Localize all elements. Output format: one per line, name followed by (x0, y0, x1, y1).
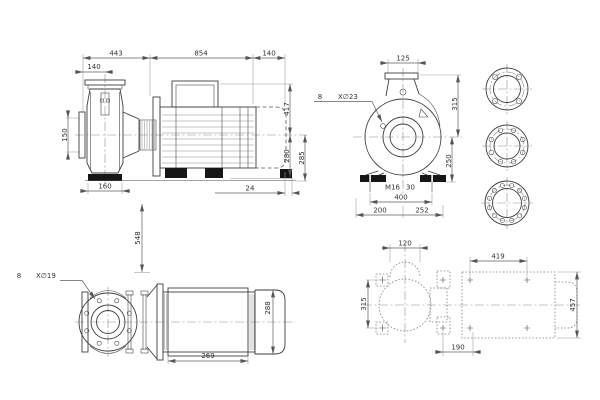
foundation-plan-view: 120 315 419 457 190 (360, 240, 581, 357)
dim-axis-right: 252 (415, 207, 428, 215)
hole-callout-plan-view: 8 X∅19 (17, 272, 95, 299)
bolt-hole (518, 214, 522, 218)
bolt-cross-marks (467, 277, 530, 331)
adapter-tab (437, 271, 450, 288)
anchor-bolts (370, 182, 432, 192)
dim-axis-to-floor: 285 (298, 151, 306, 164)
flange-bolt-hole (381, 124, 386, 129)
anchor-thread-label: M16 (385, 184, 400, 192)
bolt-hole (97, 341, 101, 345)
dim-discharge-flange: 125 (396, 55, 409, 63)
bolt-hole (489, 150, 494, 155)
bolt-hole (510, 184, 514, 188)
dim-anchor-span: 400 (394, 194, 407, 202)
dim-suction-to-axis: 140 (87, 63, 100, 71)
pump-foot-pad (88, 174, 122, 181)
dim-pump-bolt-width: 315 (360, 297, 368, 310)
motor-foot-pad (165, 168, 187, 178)
hole-callout-end-view: 8 X∅23 (314, 93, 382, 122)
bolt-hole (115, 299, 119, 303)
dim-axis-height: 548 (134, 231, 142, 244)
dim-pump-bolt-span: 120 (398, 240, 411, 248)
bolt-hole (115, 341, 119, 345)
top-plan-view: 548 8 X∅19 288 269 (17, 204, 295, 364)
bolt-hole (492, 214, 496, 218)
dim-motor-bolt-width: 457 (569, 298, 577, 311)
dim-motor-section: 854 (194, 50, 208, 58)
motor-body (160, 107, 256, 168)
pump-foot-pad-right (420, 175, 446, 182)
dim-axis-to-top: 417 (283, 102, 291, 115)
long-motor-option-outline (256, 107, 286, 168)
dim-foot-width: 160 (98, 183, 111, 191)
bolt-cross-marks (379, 277, 386, 332)
pump-foot-pad-left (360, 175, 386, 182)
flange-4-hole (482, 64, 532, 114)
dim-axis-to-base-end: 250 (445, 154, 453, 167)
flange-8-hole (482, 121, 532, 171)
bolt-hole (500, 184, 504, 188)
dim-rear-extension: 140 (262, 50, 275, 58)
discharge-flange-front (385, 73, 418, 79)
side-elevation-view: 443 854 140 140 150 (61, 50, 307, 197)
hole-count-label: 8 (17, 272, 21, 280)
hole-spec-label: X∅19 (36, 272, 56, 280)
pump-dimensional-drawing: 443 854 140 140 150 (0, 0, 600, 400)
dim-motor-bolt-span: 419 (491, 253, 504, 261)
dim-axis-left: 200 (373, 207, 386, 215)
drawing-canvas: 443 854 140 140 150 (0, 0, 600, 400)
hole-count-label: 8 (318, 93, 322, 101)
dim-axis-to-base: 280 (283, 149, 291, 162)
dim-front-section: 443 (109, 50, 122, 58)
dim-rear-offset: 24 (246, 185, 255, 193)
adapter-tab (437, 317, 450, 334)
flow-mark (419, 109, 428, 117)
dim-axis-to-top-end: 315 (451, 97, 459, 110)
bolt-hole (97, 299, 101, 303)
dim-adapter-bolt-span: 190 (451, 344, 464, 352)
motor-stool (153, 97, 160, 176)
hole-spec-label: X∅23 (338, 93, 358, 101)
flange-12-hole (481, 177, 533, 229)
dim-suction-flange: 150 (61, 128, 69, 141)
end-view: 125 8 X∅23 315 250 M16 30 (314, 55, 462, 219)
dim-stator-length: 269 (201, 352, 214, 360)
motor-foot-pad (205, 168, 223, 178)
flange-detail-views (481, 64, 533, 229)
anchor-depth-label: 30 (406, 184, 415, 192)
dim-motor-width: 288 (264, 301, 272, 314)
bolt-cross-marks (440, 277, 446, 331)
